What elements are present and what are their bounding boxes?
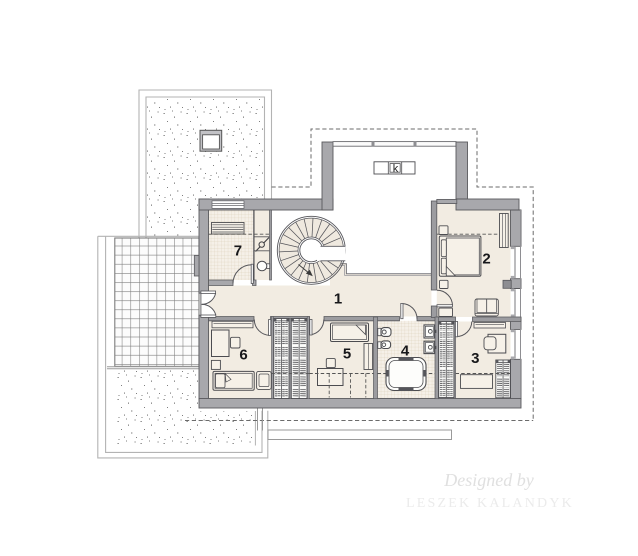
svg-text:5: 5 <box>343 346 351 363</box>
svg-text:4: 4 <box>401 342 410 359</box>
svg-text:2: 2 <box>482 250 490 267</box>
svg-text:Designed by: Designed by <box>443 470 533 490</box>
svg-text:k: k <box>393 163 399 175</box>
svg-text:LESZEK KALANDYK: LESZEK KALANDYK <box>406 496 574 511</box>
svg-text:1: 1 <box>334 291 342 308</box>
svg-text:3: 3 <box>471 350 479 367</box>
svg-text:7: 7 <box>234 243 242 260</box>
svg-text:6: 6 <box>239 347 247 364</box>
